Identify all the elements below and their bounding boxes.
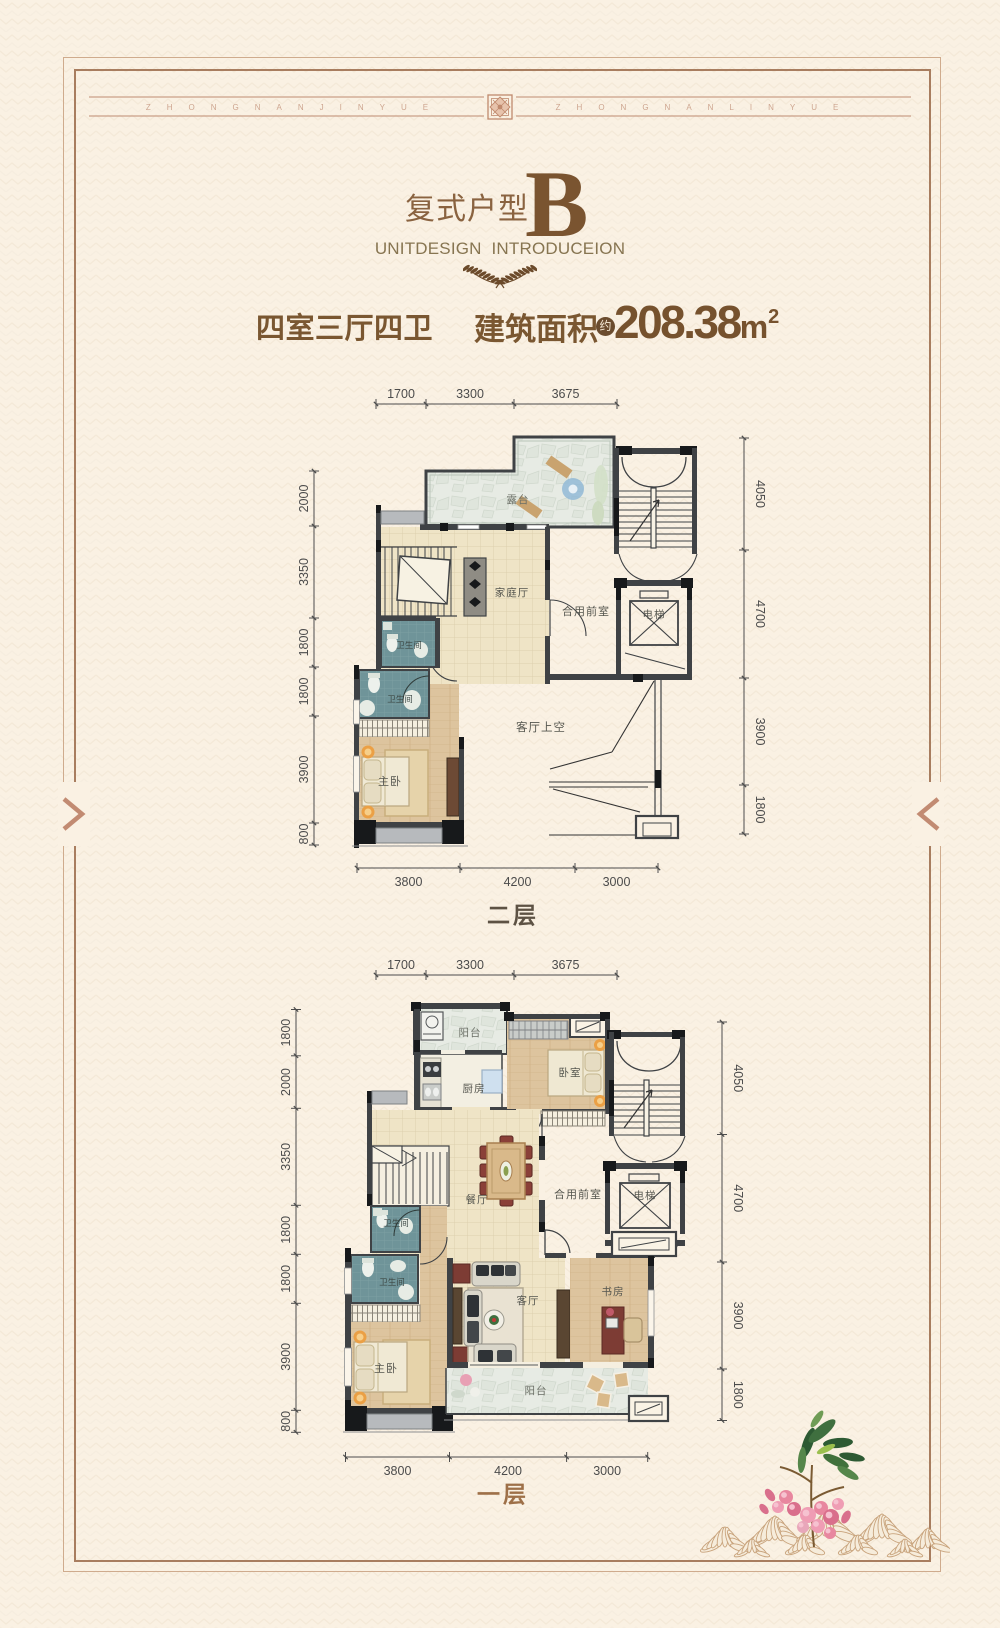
svg-text:1800: 1800 — [753, 796, 767, 824]
svg-text:3000: 3000 — [593, 1464, 621, 1478]
svg-text:1800: 1800 — [280, 1216, 293, 1244]
svg-text:3900: 3900 — [753, 718, 767, 746]
svg-text:1800: 1800 — [297, 678, 311, 706]
svg-text:3350: 3350 — [297, 558, 311, 586]
svg-text:ZHONGNANLINYUE: ZHONGNANLINYUE — [556, 103, 855, 112]
svg-text:3000: 3000 — [603, 875, 631, 889]
svg-text:卧室: 卧室 — [559, 1066, 582, 1079]
svg-text:卫生间: 卫生间 — [387, 694, 413, 704]
svg-text:4050: 4050 — [753, 480, 767, 508]
svg-text:3350: 3350 — [280, 1143, 293, 1171]
svg-text:1700: 1700 — [387, 958, 415, 972]
svg-text:厨房: 厨房 — [463, 1082, 486, 1095]
svg-text:ZHONGNANJINYUE: ZHONGNANJINYUE — [146, 103, 444, 112]
svg-text:1800: 1800 — [297, 629, 311, 657]
svg-text:3300: 3300 — [456, 388, 484, 401]
svg-text:3900: 3900 — [731, 1302, 745, 1330]
svg-text:餐厅: 餐厅 — [466, 1193, 489, 1206]
svg-text:4700: 4700 — [753, 600, 767, 628]
svg-text:客厅上空: 客厅上空 — [516, 720, 566, 734]
svg-text:4700: 4700 — [731, 1184, 745, 1212]
svg-text:二层: 二层 — [487, 902, 539, 928]
svg-text:合用前室: 合用前室 — [554, 1187, 602, 1201]
svg-text:800: 800 — [297, 824, 311, 845]
svg-text:1800: 1800 — [280, 1019, 293, 1047]
svg-text:1700: 1700 — [387, 388, 415, 401]
svg-text:一层: 一层 — [477, 1481, 529, 1507]
svg-text:3800: 3800 — [395, 875, 423, 889]
svg-text:3300: 3300 — [456, 958, 484, 972]
svg-text:电梯: 电梯 — [643, 608, 666, 621]
svg-text:书房: 书房 — [602, 1285, 625, 1298]
svg-text:卫生间: 卫生间 — [396, 640, 422, 650]
svg-text:3675: 3675 — [552, 388, 580, 401]
svg-text:家庭厅: 家庭厅 — [495, 586, 530, 599]
svg-text:阳台: 阳台 — [459, 1026, 482, 1039]
svg-text:3800: 3800 — [384, 1464, 412, 1478]
svg-text:2000: 2000 — [297, 485, 311, 513]
svg-text:露台: 露台 — [507, 493, 530, 506]
svg-text:3900: 3900 — [280, 1343, 293, 1371]
svg-text:主卧: 主卧 — [378, 775, 402, 788]
svg-text:4050: 4050 — [731, 1064, 745, 1092]
svg-text:4200: 4200 — [504, 875, 532, 889]
svg-text:合用前室: 合用前室 — [562, 604, 610, 618]
svg-text:卫生间: 卫生间 — [379, 1277, 405, 1287]
svg-text:800: 800 — [280, 1411, 293, 1432]
svg-text:电梯: 电梯 — [634, 1189, 657, 1202]
svg-text:3675: 3675 — [552, 958, 580, 972]
svg-text:阳台: 阳台 — [525, 1384, 548, 1397]
svg-text:3900: 3900 — [297, 756, 311, 784]
svg-text:主卧: 主卧 — [374, 1362, 398, 1375]
svg-text:4200: 4200 — [494, 1464, 522, 1478]
svg-text:客厅: 客厅 — [517, 1294, 540, 1307]
svg-text:2000: 2000 — [280, 1068, 293, 1096]
svg-text:1800: 1800 — [280, 1265, 293, 1293]
